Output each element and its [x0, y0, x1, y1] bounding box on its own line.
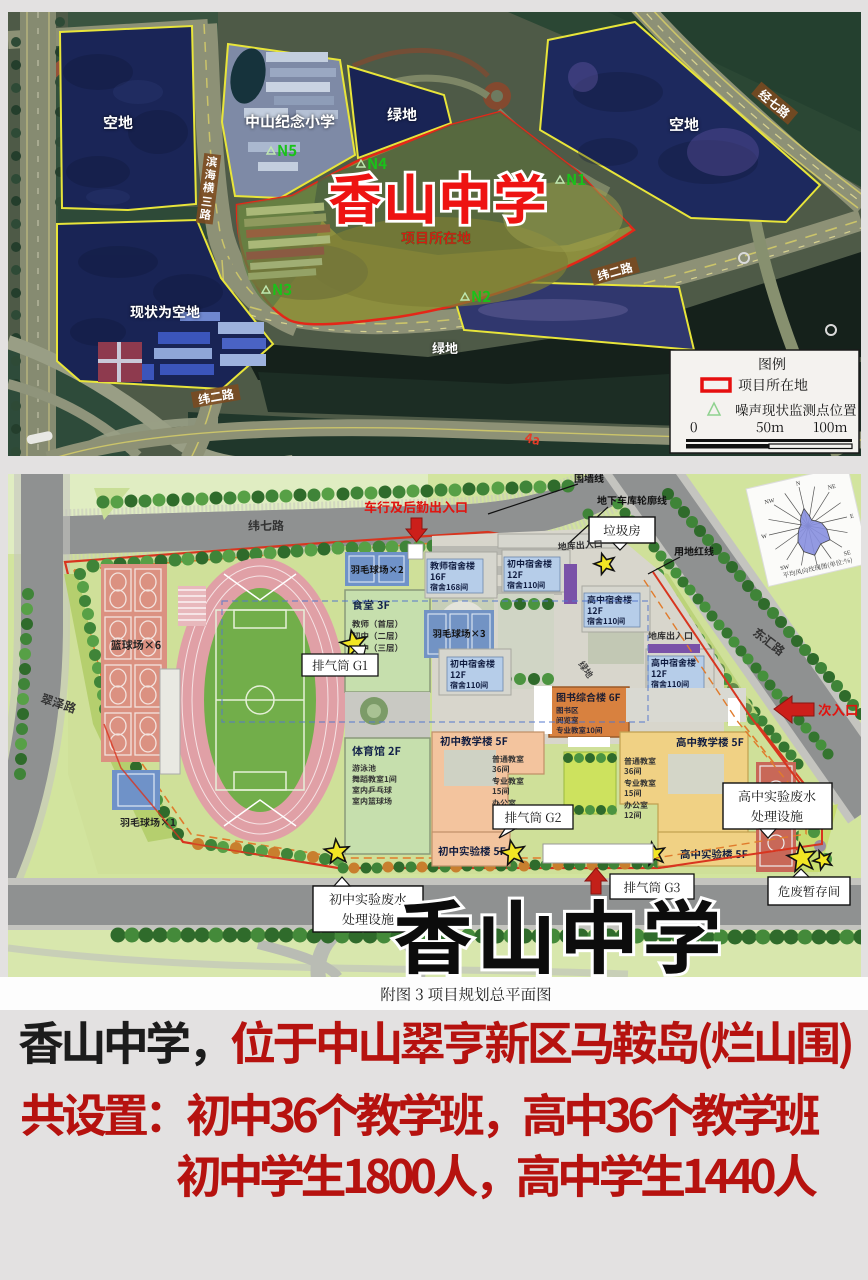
svg-text:排气筒 G1: 排气筒 G1	[312, 656, 368, 674]
svg-text:宿舍110间: 宿舍110间	[507, 580, 545, 591]
svg-text:36间: 36间	[624, 766, 641, 777]
svg-text:初中实验楼 5F: 初中实验楼 5F	[438, 844, 506, 859]
svg-text:宿舍110间: 宿舍110间	[587, 616, 625, 627]
svg-text:舞蹈教室1间: 舞蹈教室1间	[352, 774, 397, 785]
svg-text:15间: 15间	[492, 786, 509, 797]
svg-text:食堂 3F: 食堂 3F	[352, 597, 391, 613]
svg-text:垃圾房: 垃圾房	[603, 521, 641, 539]
svg-text:空地: 空地	[669, 114, 699, 135]
svg-text:处理设施: 处理设施	[751, 806, 803, 825]
svg-text:专业教室10间: 专业教室10间	[556, 725, 603, 736]
svg-text:15间: 15间	[624, 788, 641, 799]
svg-text:羽毛球场×2: 羽毛球场×2	[350, 562, 404, 576]
svg-text:高中教学楼 5F: 高中教学楼 5F	[676, 735, 744, 750]
svg-text:香山中学: 香山中学	[328, 156, 548, 235]
svg-text:教师（首层）: 教师（首层）	[352, 618, 403, 630]
svg-text:室内乒乓球: 室内乒乓球	[352, 785, 392, 796]
svg-text:高中实验废水: 高中实验废水	[738, 786, 816, 805]
svg-text:羽毛球场×1: 羽毛球场×1	[120, 814, 176, 829]
svg-text:绿地: 绿地	[387, 104, 417, 125]
svg-text:游泳池: 游泳池	[352, 763, 376, 774]
svg-text:图书综合楼 6F: 图书综合楼 6F	[556, 689, 621, 704]
svg-text:篮球场×6: 篮球场×6	[111, 637, 162, 653]
svg-text:0: 0	[690, 416, 698, 436]
svg-text:N1: N1	[566, 169, 586, 190]
svg-text:羽毛球场×3: 羽毛球场×3	[432, 626, 486, 640]
svg-text:室内篮球场: 室内篮球场	[352, 796, 392, 807]
svg-text:绿地: 绿地	[432, 338, 458, 357]
svg-text:用地红线: 用地红线	[674, 543, 714, 558]
svg-text:地下车库轮廓线: 地下车库轮廓线	[597, 492, 667, 507]
svg-text:N2: N2	[471, 286, 491, 307]
svg-text:排气筒 G2: 排气筒 G2	[505, 808, 562, 826]
svg-text:次入口: 次入口	[818, 699, 859, 719]
svg-text:项目所在地: 项目所在地	[738, 375, 808, 395]
svg-text:36间: 36间	[492, 764, 509, 775]
svg-text:围墙线: 围墙线	[574, 474, 604, 485]
svg-text:12间: 12间	[624, 810, 641, 821]
svg-text:100m: 100m	[813, 416, 848, 436]
svg-text:50m: 50m	[756, 416, 784, 436]
svg-text:宿舍110间: 宿舍110间	[450, 680, 488, 691]
svg-text:体育馆 2F: 体育馆 2F	[352, 743, 402, 759]
svg-text:中山纪念小学: 中山纪念小学	[245, 111, 335, 132]
svg-text:宿舍168间: 宿舍168间	[430, 582, 468, 593]
svg-text:处理设施: 处理设施	[342, 909, 394, 928]
svg-text:空地: 空地	[103, 112, 133, 133]
svg-text:图例: 图例	[758, 354, 786, 374]
svg-text:车行及后勤出入口: 车行及后勤出入口	[364, 497, 468, 516]
svg-text:N5: N5	[277, 140, 297, 161]
svg-text:香山中学: 香山中学	[393, 875, 725, 977]
svg-text:纬七路: 纬七路	[248, 517, 284, 534]
svg-text:N3: N3	[272, 279, 292, 300]
svg-text:危废暂存间: 危废暂存间	[778, 882, 841, 900]
svg-text:初中教学楼 5F: 初中教学楼 5F	[440, 734, 508, 749]
svg-text:现状为空地: 现状为空地	[130, 302, 200, 322]
svg-text:项目所在地: 项目所在地	[401, 228, 471, 248]
svg-text:地库出入口: 地库出入口	[648, 629, 693, 642]
